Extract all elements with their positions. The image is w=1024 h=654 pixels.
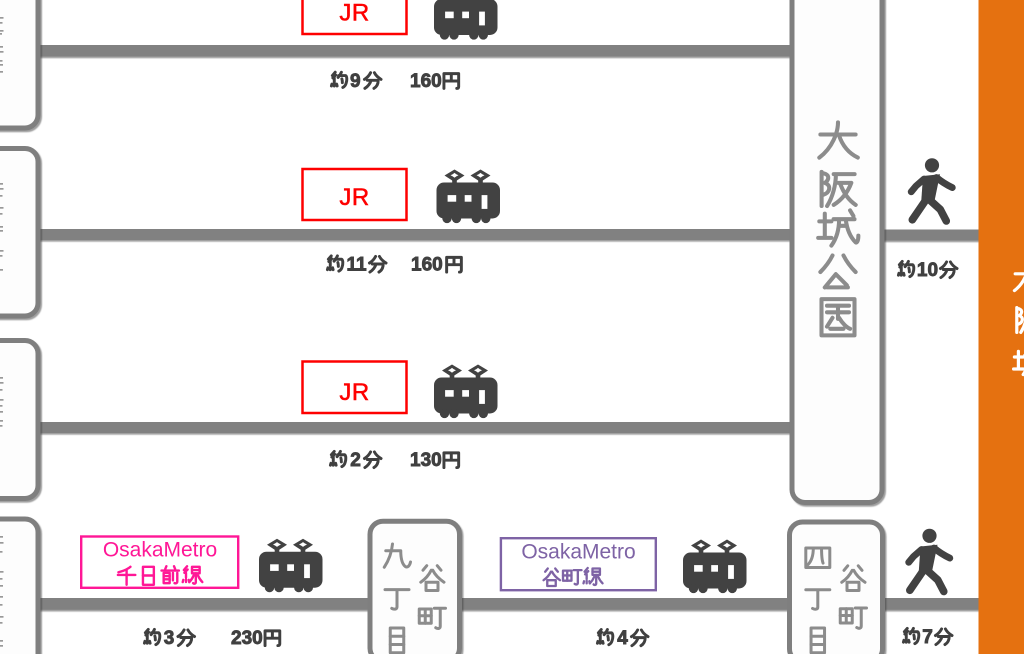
- svg-text:4: 4: [617, 628, 628, 649]
- svg-text:7: 7: [922, 627, 933, 648]
- svg-text:3: 3: [164, 628, 175, 649]
- svg-text:230: 230: [231, 628, 263, 649]
- svg-text:11: 11: [346, 255, 367, 276]
- svg-text:160: 160: [411, 255, 443, 276]
- svg-text:OsakaMetro: OsakaMetro: [103, 539, 217, 562]
- svg-text:JR: JR: [339, 0, 369, 27]
- svg-text:JR: JR: [339, 379, 369, 406]
- svg-text:OsakaMetro: OsakaMetro: [521, 541, 635, 564]
- svg-text:JR: JR: [339, 184, 369, 211]
- svg-text:2: 2: [350, 450, 361, 471]
- svg-text:10: 10: [917, 260, 938, 281]
- svg-text:130: 130: [410, 450, 442, 471]
- svg-text:9: 9: [350, 71, 361, 92]
- svg-text:160: 160: [410, 71, 442, 92]
